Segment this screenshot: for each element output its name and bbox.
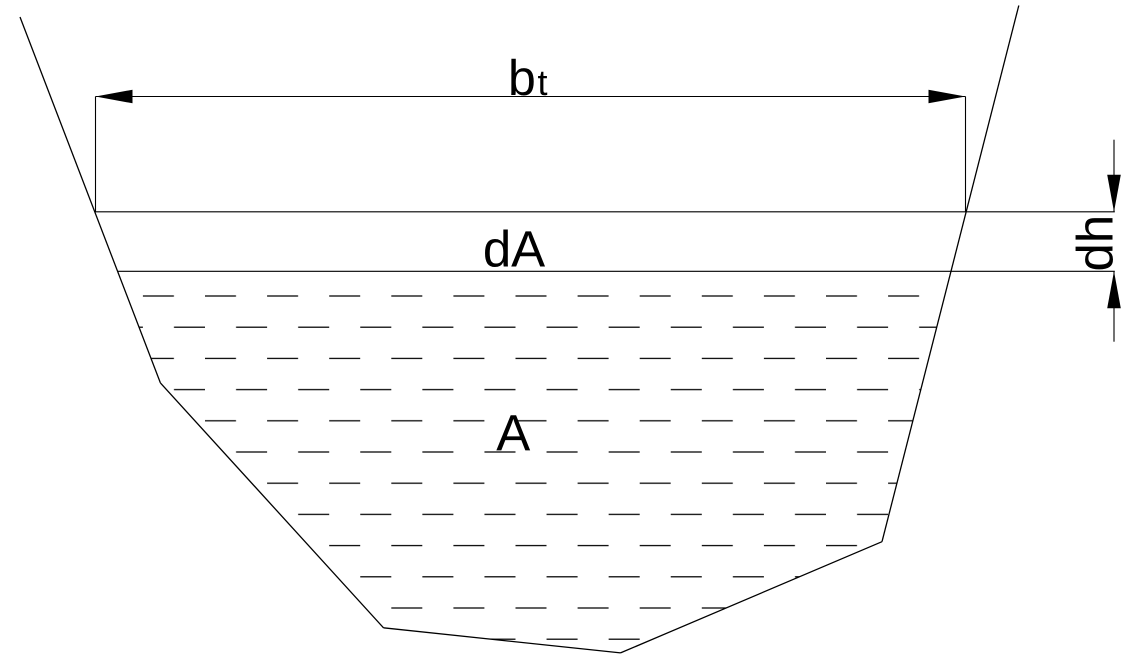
svg-text:dA: dA (483, 220, 545, 277)
svg-text:b: b (508, 50, 536, 106)
svg-text:A: A (496, 404, 530, 461)
svg-text:dh: dh (1067, 215, 1124, 272)
